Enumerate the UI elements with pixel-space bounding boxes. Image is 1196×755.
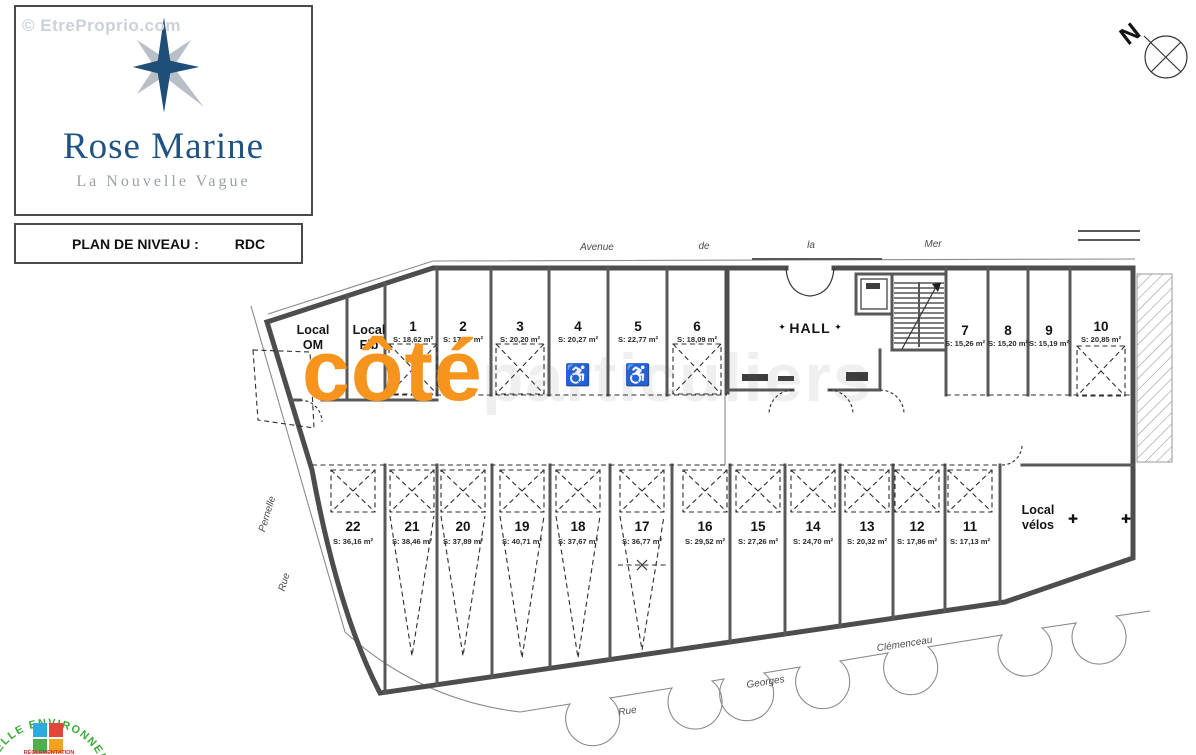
local-velos-label: Local [1022, 503, 1055, 517]
plan-level-box: PLAN DE NIVEAU : RDC [14, 223, 303, 264]
plan-level-value: RDC [235, 236, 265, 252]
parking-space-10: 10S: 20,85 m² [1081, 319, 1122, 344]
street-avenue: Avenue [579, 242, 614, 253]
etreproprio-watermark: © EtreProprio.com [22, 16, 181, 36]
parking-space-14: 14S: 24,70 m² [793, 519, 834, 546]
space-area: S: 40,71 m² [502, 537, 543, 546]
compass: N [1114, 18, 1187, 78]
space-number: 16 [697, 519, 713, 534]
space-number: 18 [570, 519, 586, 534]
space-number: 20 [455, 519, 470, 534]
plan-level-label: PLAN DE NIVEAU : [72, 236, 199, 252]
space-area: S: 29,52 m² [685, 537, 726, 546]
space-area: S: 15,19 m² [1029, 339, 1070, 348]
developer-logo-box: Rose Marine La Nouvelle Vague [14, 5, 313, 216]
street-rue-bottom: Rue [618, 705, 638, 719]
adjacent-building-hatch [1137, 274, 1172, 462]
bike-rack-icon: ✚ [1068, 512, 1078, 526]
parking-space-12: 12S: 17,86 m² [897, 519, 938, 546]
eco-certification-logo: NELLE ENVIRONNEM RÉGLEMENTATION [0, 673, 110, 755]
parking-space-9: 9S: 15,19 m² [1029, 323, 1070, 348]
street-georges: Georges [746, 674, 786, 691]
space-number: 9 [1045, 323, 1053, 338]
space-area: S: 20,85 m² [1081, 335, 1122, 344]
diamond-icon: ✦ [778, 322, 786, 332]
street-left-name: Pernelle [257, 495, 278, 534]
parking-space-19: 19S: 40,71 m² [502, 519, 543, 546]
space-area: S: 37,67 m² [558, 537, 599, 546]
bike-rack-icon: ✚ [1121, 512, 1131, 526]
diamond-icon: ✦ [834, 322, 842, 332]
space-area: S: 36,16 m² [333, 537, 374, 546]
parking-space-16: 16S: 29,52 m² [685, 519, 726, 546]
local-velos-label2: vélos [1022, 518, 1054, 532]
space-number: 17 [634, 519, 649, 534]
space-area: S: 36,77 m² [622, 537, 663, 546]
parking-space-20: 20S: 37,89 m² [443, 519, 484, 546]
space-area: S: 27,26 m² [738, 537, 779, 546]
space-number: 13 [859, 519, 875, 534]
space-area: S: 15,26 m² [945, 339, 986, 348]
space-area: S: 38,46 m² [392, 537, 433, 546]
parking-space-11: 11S: 17,13 m² [950, 519, 991, 546]
eco-sub-text: RÉGLEMENTATION [24, 748, 75, 755]
residence-tagline: La Nouvelle Vague [16, 173, 311, 191]
space-number: 4 [574, 319, 582, 334]
space-area: S: 37,89 m² [443, 537, 484, 546]
space-area: S: 17,13 m² [950, 537, 991, 546]
street-clemenceau: Clémenceau [876, 635, 934, 655]
agency-watermark-ghost: particuliers [482, 344, 873, 412]
parking-space-18: 18S: 37,67 m² [558, 519, 599, 546]
space-area: S: 15,20 m² [988, 339, 1029, 348]
space-number: 19 [514, 519, 529, 534]
space-number: 8 [1004, 323, 1012, 338]
space-number: 6 [693, 319, 701, 334]
parking-space-22: 22S: 36,16 m² [333, 519, 374, 546]
street-la: la [807, 240, 815, 251]
space-number: 15 [750, 519, 766, 534]
space-area: S: 20,32 m² [847, 537, 888, 546]
space-number: 22 [345, 519, 360, 534]
space-number: 12 [909, 519, 924, 534]
north-label: N [1114, 18, 1145, 51]
space-number: 5 [634, 319, 642, 334]
residence-name: Rose Marine [16, 125, 311, 168]
space-area: S: 24,70 m² [793, 537, 834, 546]
space-number: 3 [516, 319, 524, 334]
parking-space-21: 21S: 38,46 m² [392, 519, 433, 546]
parking-space-7: 7S: 15,26 m² [945, 323, 986, 348]
space-area: S: 17,86 m² [897, 537, 938, 546]
space-number: 14 [805, 519, 821, 534]
parking-space-17: 17S: 36,77 m² [622, 519, 663, 546]
agency-watermark: côté [302, 328, 483, 414]
parking-space-13: 13S: 20,32 m² [847, 519, 888, 546]
space-number: 21 [404, 519, 420, 534]
parking-space-15: 15S: 27,26 m² [738, 519, 779, 546]
hall-label: HALL [789, 320, 830, 336]
street-mer: Mer [924, 239, 942, 250]
space-number: 10 [1093, 319, 1108, 334]
space-number: 7 [961, 323, 969, 338]
street-left-rue: Rue [277, 571, 293, 592]
street-de: de [698, 241, 710, 252]
parking-space-8: 8S: 15,20 m² [988, 323, 1029, 348]
space-number: 11 [963, 519, 978, 534]
